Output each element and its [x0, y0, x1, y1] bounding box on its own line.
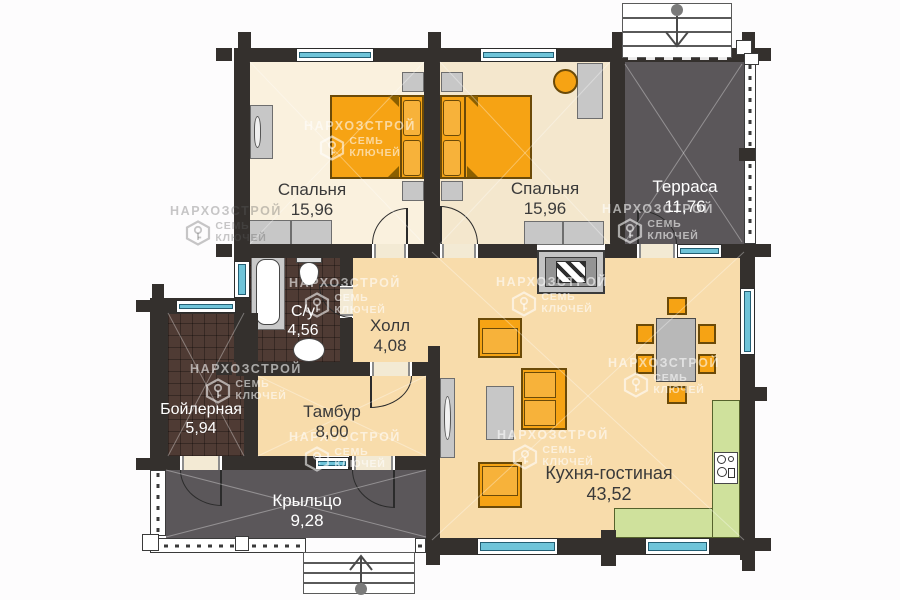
log-end — [216, 48, 232, 61]
room-label-vestibule: Тамбур 8,00 — [303, 402, 361, 442]
stove-icon — [714, 452, 738, 484]
cabinet-divider — [562, 222, 564, 244]
nightstand — [441, 72, 463, 92]
wall — [426, 538, 477, 555]
stair-tread — [623, 17, 731, 19]
door-opening — [637, 244, 677, 258]
railing-post — [744, 53, 759, 65]
window-glass — [744, 291, 751, 352]
fireplace — [537, 250, 605, 294]
log-end — [753, 387, 767, 401]
dining-chair — [698, 324, 716, 344]
room-name: Холл — [370, 316, 410, 336]
nightstand — [402, 72, 424, 92]
door-opening — [180, 456, 222, 470]
log-end — [428, 346, 440, 364]
window-glass — [238, 264, 246, 295]
log-end — [136, 300, 150, 312]
window — [296, 48, 374, 62]
dining-chair — [636, 324, 654, 344]
door-opening — [370, 362, 412, 376]
log-end — [755, 244, 771, 257]
stair-tread — [623, 31, 731, 33]
railing-post — [739, 148, 755, 161]
stair-tread — [304, 572, 414, 574]
wall — [222, 456, 258, 470]
window — [477, 538, 558, 555]
log-end — [136, 458, 150, 470]
window-glass — [179, 304, 233, 309]
door-leaf — [440, 206, 442, 244]
room-name: С/у — [287, 303, 318, 322]
wall — [426, 362, 440, 538]
coffee-table — [486, 386, 514, 440]
door-opening — [372, 244, 408, 258]
room-area: 9,28 — [272, 511, 341, 531]
tv-icon — [254, 116, 261, 148]
window — [315, 457, 349, 470]
room-name: Бойлерная — [160, 401, 242, 420]
stair-tread — [304, 562, 414, 564]
wall — [558, 538, 645, 555]
room-name: Тамбур — [303, 402, 361, 422]
log-end — [152, 284, 164, 300]
room-area: 15,96 — [278, 200, 346, 220]
log-end — [601, 530, 616, 538]
porch-stairs — [303, 552, 415, 594]
armchair-seat — [482, 466, 518, 496]
room-label-bedroom2: Спальня 15,96 — [511, 179, 579, 219]
room-area: 43,52 — [545, 484, 672, 505]
log-end — [216, 244, 232, 257]
wall — [740, 355, 755, 560]
room-area: 15,96 — [511, 199, 579, 219]
room-area: 4,56 — [287, 322, 318, 341]
tv-icon — [444, 396, 451, 440]
door-opening — [352, 456, 395, 470]
armchair-seat — [482, 328, 518, 354]
sink-icon — [293, 338, 325, 362]
room-area: 11,76 — [652, 197, 717, 217]
burner — [728, 456, 734, 462]
room-name: Спальня — [278, 180, 346, 200]
room-label-kitchen-living: Кухня-гостиная 43,52 — [545, 463, 672, 505]
room-label-boiler: Бойлерная 5,94 — [160, 401, 242, 439]
kitchen-counter — [614, 508, 713, 538]
room-name: Кухня-гостиная — [545, 463, 672, 484]
door-leaf — [406, 208, 408, 244]
wall — [244, 313, 258, 456]
log-end — [742, 555, 755, 571]
room-label-bedroom1: Спальня 15,96 — [278, 180, 346, 220]
cabinet-divider — [290, 221, 292, 244]
cabinet — [524, 221, 604, 245]
room-label-terrace: Терраса 11,76 — [652, 177, 717, 217]
window-glass — [480, 542, 555, 551]
door-leaf — [319, 284, 352, 286]
wall — [258, 456, 315, 470]
window — [677, 244, 722, 258]
pillow — [403, 100, 421, 136]
sofa-cushion — [524, 372, 556, 398]
window — [645, 538, 710, 555]
pillow — [403, 140, 421, 176]
porch-railing — [415, 538, 426, 553]
dining-table — [656, 318, 696, 382]
dining-chair — [667, 297, 687, 315]
porch-railing — [150, 538, 306, 553]
stair-tread — [304, 582, 414, 584]
room-label-bathroom: С/у 4,56 — [287, 303, 318, 341]
nightstand — [441, 181, 463, 201]
window-glass — [318, 461, 346, 466]
room-name: Спальня — [511, 179, 579, 199]
log-end — [755, 538, 771, 551]
fireplace-hearth — [556, 261, 586, 283]
stool — [553, 69, 578, 94]
railing-post — [142, 534, 159, 551]
window — [740, 288, 755, 355]
window-glass — [483, 52, 554, 58]
room-area: 5,94 — [160, 420, 242, 439]
window-glass — [648, 542, 707, 551]
bed-headboard-line — [400, 97, 402, 177]
door-opening — [440, 244, 478, 258]
room-name: Крыльцо — [272, 491, 341, 511]
log-end — [216, 362, 232, 375]
log-end — [428, 32, 441, 50]
door-leaf — [370, 376, 372, 408]
railing-post — [235, 536, 249, 551]
desk — [577, 63, 603, 119]
wall — [340, 250, 353, 285]
room-name: Терраса — [652, 177, 717, 197]
wall — [740, 244, 755, 288]
dining-chair — [667, 386, 687, 404]
wall — [340, 318, 353, 362]
wall — [408, 244, 440, 258]
dining-chair — [636, 354, 654, 374]
window-glass — [299, 52, 371, 58]
pillow — [443, 140, 461, 176]
room-label-porch: Крыльцо 9,28 — [272, 491, 341, 531]
door-leaf — [393, 470, 395, 508]
door-leaf — [637, 210, 639, 244]
sofa-cushion — [524, 400, 556, 426]
window — [480, 48, 557, 62]
room-label-hall: Холл 4,08 — [370, 316, 410, 356]
wall — [610, 48, 625, 244]
wall — [424, 48, 440, 244]
window-glass — [680, 248, 719, 254]
log-end — [426, 555, 440, 565]
floor-plan: Спальня 15,96 Спальня 15,96 Терраса 11,7… — [0, 0, 900, 600]
stair-tread — [623, 45, 731, 47]
log-end — [601, 555, 616, 566]
dining-chair — [698, 354, 716, 374]
terrace-stairs — [622, 3, 732, 58]
room-area: 8,00 — [303, 422, 361, 442]
burner — [717, 455, 726, 464]
log-end — [238, 32, 251, 50]
room-area: 4,08 — [370, 336, 410, 356]
window — [176, 300, 236, 313]
wall — [478, 244, 537, 258]
pillow — [443, 100, 461, 136]
burner — [728, 468, 735, 478]
wall — [605, 244, 637, 258]
seven-keys-logo-icon — [185, 220, 211, 246]
window — [234, 261, 250, 298]
door-leaf — [220, 470, 222, 506]
bathtub-basin — [256, 259, 280, 325]
bed-headboard-line — [464, 97, 466, 177]
porch-railing — [150, 470, 166, 536]
nightstand — [402, 181, 424, 201]
wall — [150, 456, 180, 470]
burner — [717, 467, 727, 477]
wall — [234, 48, 250, 261]
